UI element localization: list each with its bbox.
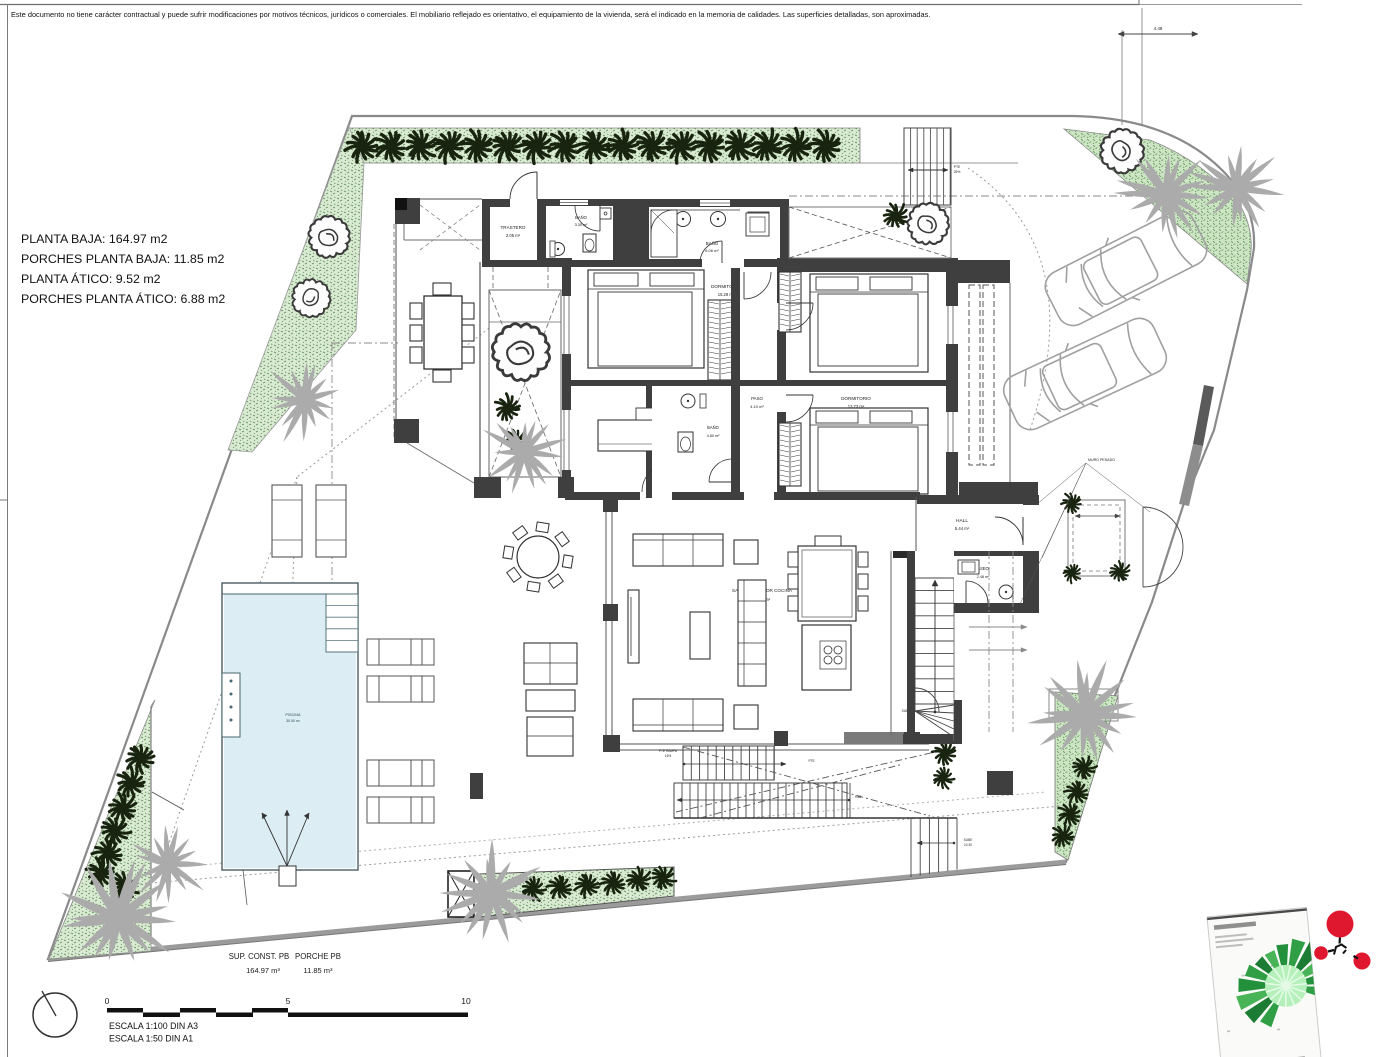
svg-text:4.48: 4.48 [1154,26,1163,31]
svg-text:2.05 m²: 2.05 m² [506,233,521,238]
svg-text:25%: 25% [954,170,961,174]
svg-text:Este documento no tiene caráct: Este documento no tiene carácter contrac… [11,10,930,19]
svg-text:TRASTERO: TRASTERO [500,225,525,230]
svg-text:30.00 m²: 30.00 m² [286,719,301,723]
svg-text:4.80 m²: 4.80 m² [707,434,721,438]
svg-text:6.06 m²: 6.06 m² [705,248,719,253]
svg-text:5: 5 [286,996,291,1006]
svg-text:2.48 m²: 2.48 m² [977,575,991,579]
svg-text:HALL: HALL [956,518,968,524]
svg-text:PORCHES PLANTA BAJA: 11.85 m2: PORCHES PLANTA BAJA: 11.85 m2 [21,252,224,266]
svg-text:PLANTA BAJA: 164.97 m2: PLANTA BAJA: 164.97 m2 [21,232,168,246]
svg-text:PTE: PTE [954,165,961,169]
svg-text:PLANTA ÁTICO: 9.52 m2: PLANTA ÁTICO: 9.52 m2 [21,271,161,286]
svg-text:BAÑO: BAÑO [707,425,720,430]
svg-text:ESCALA 1:50 DIN A1: ESCALA 1:50 DIN A1 [109,1034,193,1044]
svg-text:0: 0 [105,996,110,1006]
svg-text:11.85 m³: 11.85 m³ [303,966,333,975]
svg-text:9.88: 9.88 [855,795,861,799]
svg-text:PISCINA: PISCINA [285,713,301,717]
svg-text:164.97 m³: 164.97 m³ [246,966,280,975]
svg-text:5.44 m²: 5.44 m² [955,526,970,531]
svg-text:PASO: PASO [751,396,763,401]
svg-text:DORMITORIO: DORMITORIO [841,396,871,401]
svg-text:PTE RAMPA: PTE RAMPA [659,749,678,753]
svg-text:4.10 m²: 4.10 m² [750,404,764,409]
svg-text:PORCHE PB: PORCHE PB [295,952,341,961]
svg-text:16%: 16% [665,754,672,758]
svg-text:MURO PESADO: MURO PESADO [1088,458,1115,462]
svg-text:SUBE: SUBE [964,838,973,842]
svg-text:SUP. CONST. PB: SUP. CONST. PB [229,952,290,961]
svg-text:10: 10 [461,996,471,1006]
svg-text:PTE.: PTE. [808,759,815,763]
svg-text:ESCALA 1:100 DIN A3: ESCALA 1:100 DIN A3 [109,1021,198,1031]
svg-text:10.30: 10.30 [964,843,972,847]
svg-text:PORCHES PLANTA ÁTICO: 6.88 m2: PORCHES PLANTA ÁTICO: 6.88 m2 [21,291,225,306]
